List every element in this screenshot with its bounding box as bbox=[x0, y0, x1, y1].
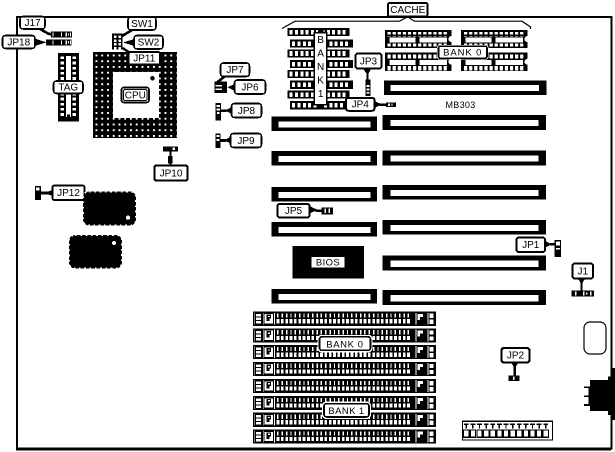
svg-text:JP9: JP9 bbox=[237, 136, 255, 147]
svg-text:JP8: JP8 bbox=[238, 106, 256, 117]
svg-text:BIOS: BIOS bbox=[316, 258, 340, 269]
svg-text:JP2: JP2 bbox=[507, 351, 525, 362]
svg-text:A: A bbox=[317, 49, 324, 60]
svg-text:JP6: JP6 bbox=[241, 82, 259, 93]
svg-text:B: B bbox=[317, 35, 324, 46]
svg-text:JP3: JP3 bbox=[360, 56, 378, 67]
svg-text:JP7: JP7 bbox=[226, 65, 244, 76]
svg-text:JP11: JP11 bbox=[133, 54, 155, 65]
svg-text:BANK 0: BANK 0 bbox=[326, 339, 363, 350]
svg-text:1: 1 bbox=[318, 89, 324, 100]
svg-text:CACHE: CACHE bbox=[390, 5, 425, 16]
svg-text:MB303: MB303 bbox=[445, 100, 475, 110]
svg-text:JP5: JP5 bbox=[285, 206, 303, 217]
svg-text:SW1: SW1 bbox=[131, 19, 153, 30]
svg-text:BANK 1: BANK 1 bbox=[328, 406, 364, 417]
svg-text:JP4: JP4 bbox=[352, 100, 370, 111]
svg-text:JP10: JP10 bbox=[160, 168, 183, 179]
svg-text:BANK 0: BANK 0 bbox=[443, 48, 482, 59]
svg-text:K: K bbox=[317, 76, 324, 87]
svg-text:JP12: JP12 bbox=[57, 188, 80, 199]
svg-text:JP1: JP1 bbox=[522, 240, 540, 251]
svg-text:N: N bbox=[317, 62, 324, 73]
svg-text:J1: J1 bbox=[577, 266, 588, 277]
svg-text:TAG: TAG bbox=[58, 83, 78, 94]
svg-text:SW2: SW2 bbox=[138, 38, 160, 49]
svg-text:CPU: CPU bbox=[125, 91, 146, 102]
svg-text:JP18: JP18 bbox=[7, 37, 30, 48]
svg-text:J17: J17 bbox=[24, 18, 41, 29]
